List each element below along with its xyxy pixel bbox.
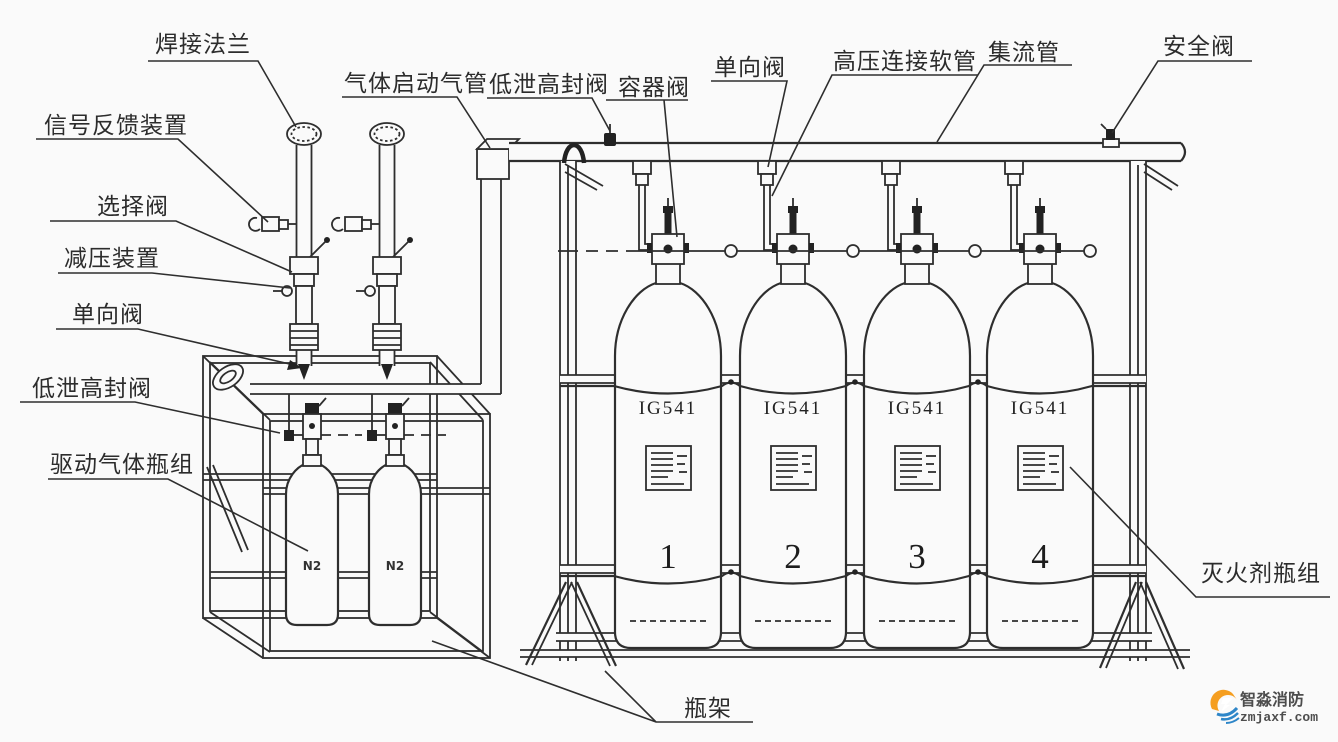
label-container-valve: 容器阀 (618, 75, 690, 101)
pipe-bend-icon (208, 359, 247, 395)
driver-cylinder: N2 (367, 394, 421, 625)
cylinder-gas-label: IG541 (639, 398, 698, 419)
gas-suppression-system-diagram: IG541 1 IG541 2 IG541 3 IG541 4 (0, 0, 1338, 742)
label-safety-valve: 安全阀 (1163, 34, 1235, 60)
driver-rack-frame (203, 356, 490, 658)
leader-low-leak-left (20, 402, 280, 433)
driver-cylinder-label: N2 (386, 559, 404, 573)
leader-manifold (937, 65, 1072, 142)
leader-startup-pipe (342, 97, 490, 148)
watermark-brand: 智淼消防 (1240, 690, 1304, 709)
watermark-url: zmjaxf.com (1240, 710, 1318, 725)
watermark: 智淼消防 zmjaxf.com (1210, 690, 1318, 725)
cylinder-gas-label: IG541 (764, 398, 823, 419)
low-leak-valve-icon (604, 124, 616, 146)
leader-low-leak-top (487, 98, 610, 131)
leader-safety-valve (1112, 61, 1252, 133)
driver-cylinder-group: N2 N2 (284, 394, 446, 625)
diagram-page: IG541 1 IG541 2 IG541 3 IG541 4 (0, 0, 1338, 742)
agent-cylinder: IG541 3 (864, 161, 970, 648)
label-selector-valve: 选择阀 (97, 194, 169, 220)
label-low-leak-left: 低泄高封阀 (32, 376, 152, 402)
agent-cylinder: IG541 2 (740, 161, 846, 648)
label-startup-pipe: 气体启动气管 (344, 71, 488, 97)
label-rack: 瓶架 (684, 696, 732, 722)
leader-check-valve-left (56, 329, 294, 365)
label-check-valve-top: 单向阀 (714, 55, 786, 81)
agent-cylinder-group: IG541 1 IG541 2 IG541 3 IG541 4 (615, 161, 1093, 648)
label-pressure-reducer: 减压装置 (64, 246, 160, 272)
cylinder-gas-label: IG541 (1011, 398, 1070, 419)
cylinder-number: 3 (908, 537, 926, 576)
label-hp-hose: 高压连接软管 (833, 49, 977, 75)
cylinder-number: 1 (659, 537, 677, 576)
label-welding-flange: 焊接法兰 (155, 32, 251, 58)
label-driver-group: 驱动气体瓶组 (50, 452, 194, 478)
discharge-assembly-2 (332, 123, 413, 380)
cylinder-gas-label: IG541 (888, 398, 947, 419)
leader-driver-group (48, 479, 308, 551)
label-check-valve-left: 单向阀 (72, 302, 144, 328)
watermark-logo-icon (1210, 690, 1239, 723)
cylinder-number: 2 (784, 537, 802, 576)
agent-cylinder: IG541 4 (987, 161, 1093, 648)
label-low-leak-top: 低泄高封阀 (489, 72, 609, 98)
label-signal-feedback: 信号反馈装置 (44, 113, 188, 139)
driver-cylinder-label: N2 (303, 559, 321, 573)
cylinder-number: 4 (1031, 537, 1049, 576)
leader-pressure-reducer (58, 273, 290, 288)
collecting-manifold (509, 124, 1185, 161)
agent-cylinder: IG541 1 (615, 161, 721, 648)
leader-hp-hose (772, 75, 978, 196)
discharge-assembly-1 (249, 123, 330, 380)
driver-cylinder: N2 (284, 394, 338, 625)
label-manifold: 集流管 (988, 40, 1060, 66)
label-agent-group: 灭火剂瓶组 (1201, 561, 1321, 587)
